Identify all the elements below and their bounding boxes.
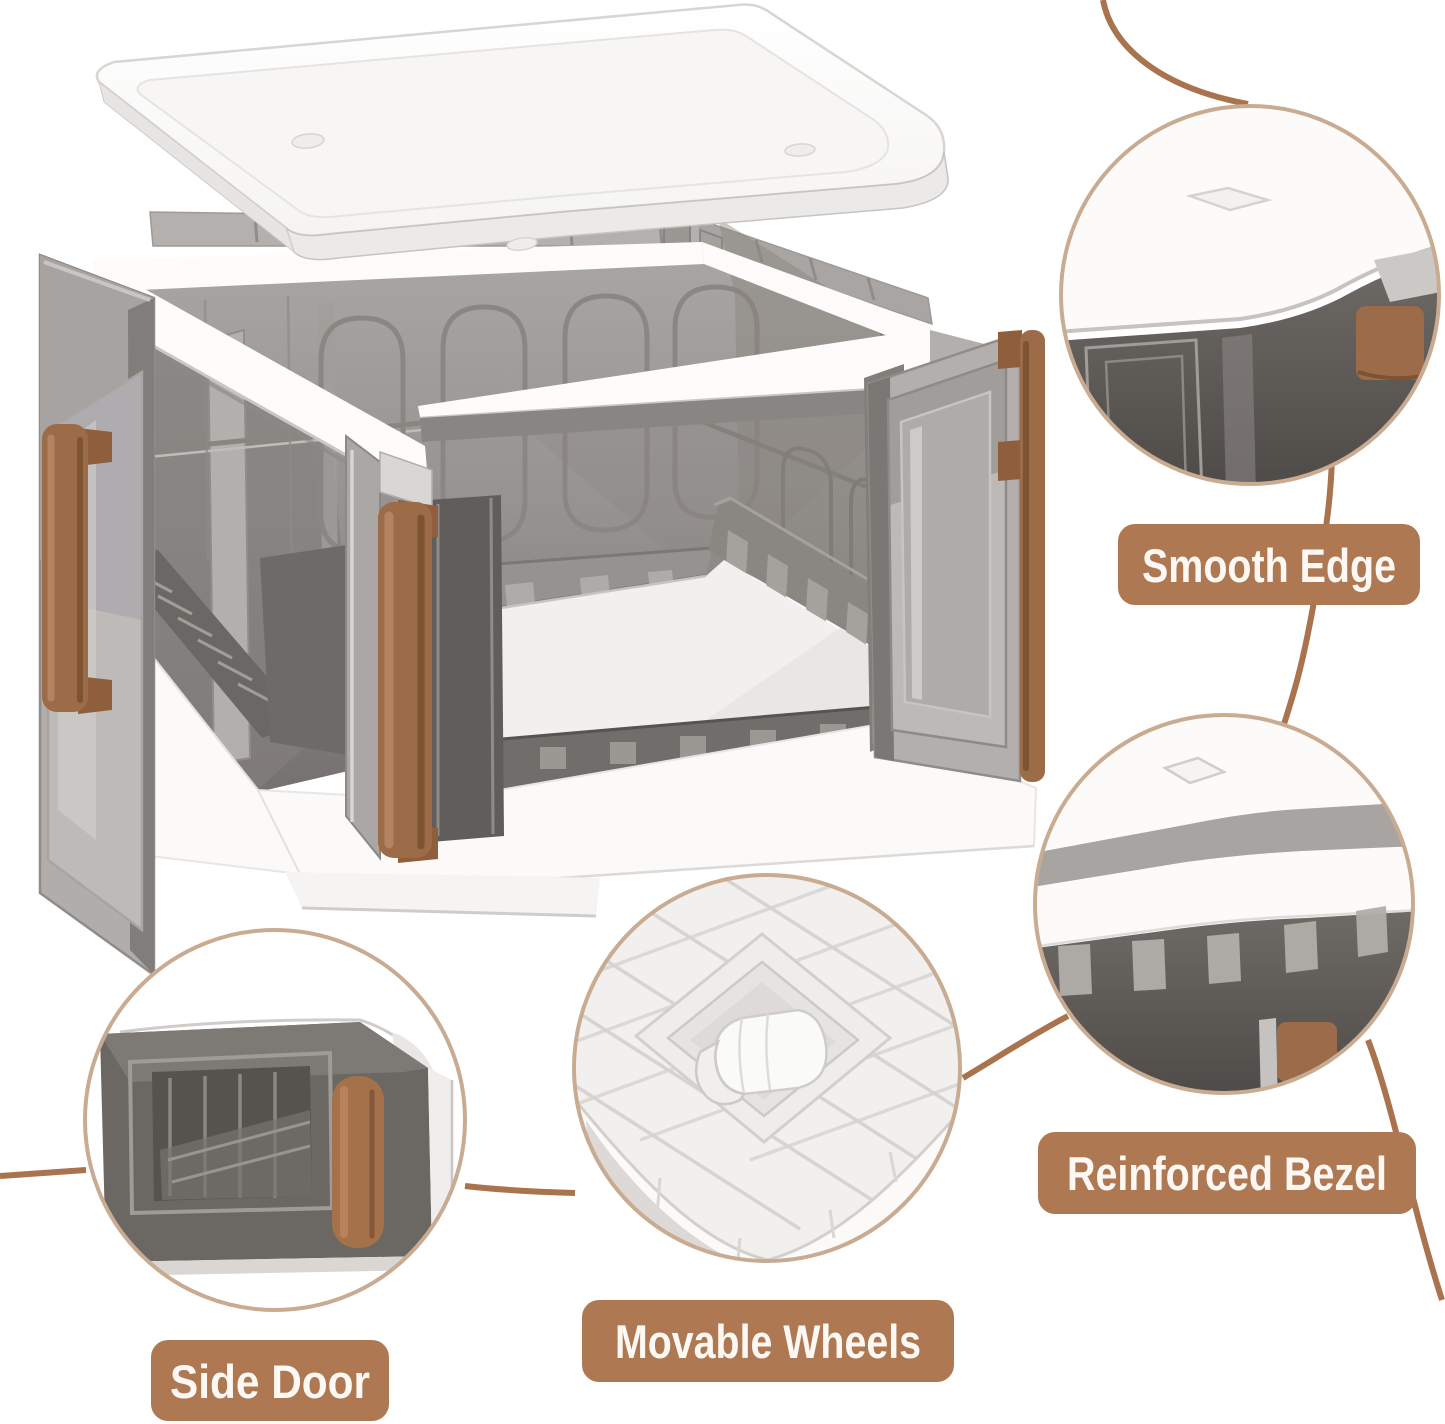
svg-text:Smooth Edge: Smooth Edge [1142,539,1396,592]
svg-text:Side Door: Side Door [170,1355,370,1408]
svg-text:Movable Wheels: Movable Wheels [615,1315,921,1368]
svg-text:Reinforced Bezel: Reinforced Bezel [1067,1147,1387,1200]
